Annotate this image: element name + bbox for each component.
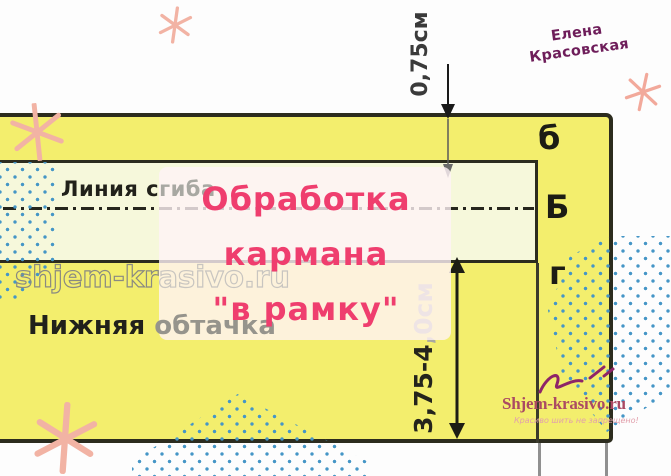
brand-site-link[interactable]: Shjem-krasivo.ru [502,394,626,414]
section-letter-b-cap: Б [545,191,569,223]
brand-slogan: Красиво шить не запрещено! [514,416,630,425]
photo-edge-line-right [605,443,608,476]
title-line-1: Обработка [158,172,454,227]
poster: Линия сгиба shjem-krasivo.ru Нижняя обта… [0,0,671,476]
photo-edge-line-left [538,443,541,476]
signature-flourish-icon [534,364,618,398]
asterisk-icon [28,400,103,476]
asterisk-icon [5,100,69,164]
asterisk-icon [154,4,197,47]
page-title: Обработка кармана "в рамку" [158,172,454,337]
section-letter-g: г [549,257,566,289]
title-line-2: кармана [158,227,454,282]
top-measurement-label: 0,75см [399,8,443,100]
author-signature: Елена Красовская [506,14,650,69]
title-line-3: "в рамку" [158,282,454,337]
asterisk-icon [619,68,666,115]
section-letter-b-small: б [538,122,560,154]
